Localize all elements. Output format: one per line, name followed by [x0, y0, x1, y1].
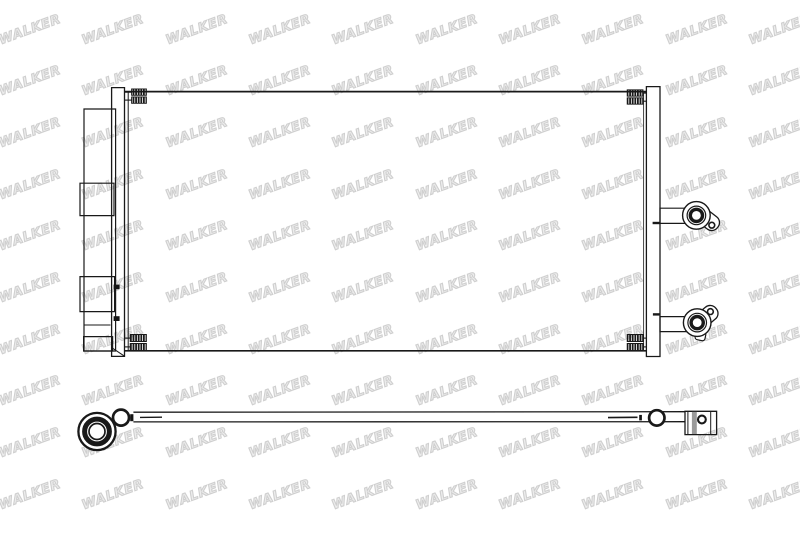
pipe-end-bracket — [685, 411, 717, 434]
drier-bracket-lower — [80, 277, 115, 312]
drier-body — [84, 109, 116, 351]
lower-ear-hole — [708, 309, 714, 315]
condenser-core — [125, 92, 647, 351]
drier-bracket-upper — [80, 183, 114, 215]
pipe-left-band — [130, 414, 133, 421]
drier-bottom-cap — [84, 337, 113, 351]
receiver-drier — [80, 109, 120, 351]
upper-flange-bore — [690, 209, 702, 221]
eyelet-ring — [78, 413, 115, 450]
pipe-union-nut — [649, 410, 664, 425]
bracket-hole — [698, 416, 706, 424]
lower-flange-bore — [691, 317, 703, 329]
eyelet-neck-nut — [113, 410, 129, 426]
condenser-technical-drawing — [0, 0, 800, 534]
drier-clip-upper — [114, 285, 120, 290]
upper-port-fitting — [653, 202, 723, 234]
right-side-plate — [646, 87, 660, 357]
pipe-assembly — [78, 410, 716, 451]
product-drawing-canvas: WALKERWALKERWALKERWALKERWALKERWALKERWALK… — [0, 0, 800, 534]
drier-clip-lower — [114, 316, 120, 321]
left-side-plate — [112, 88, 125, 357]
bracket-rubber-stripe — [692, 412, 697, 434]
pipe-top-line — [133, 412, 685, 413]
left-side-plate-chamfer — [112, 348, 125, 357]
upper-ear-hole — [709, 222, 715, 228]
lower-port-fitting — [653, 303, 721, 342]
pipe-right-band — [639, 415, 642, 421]
